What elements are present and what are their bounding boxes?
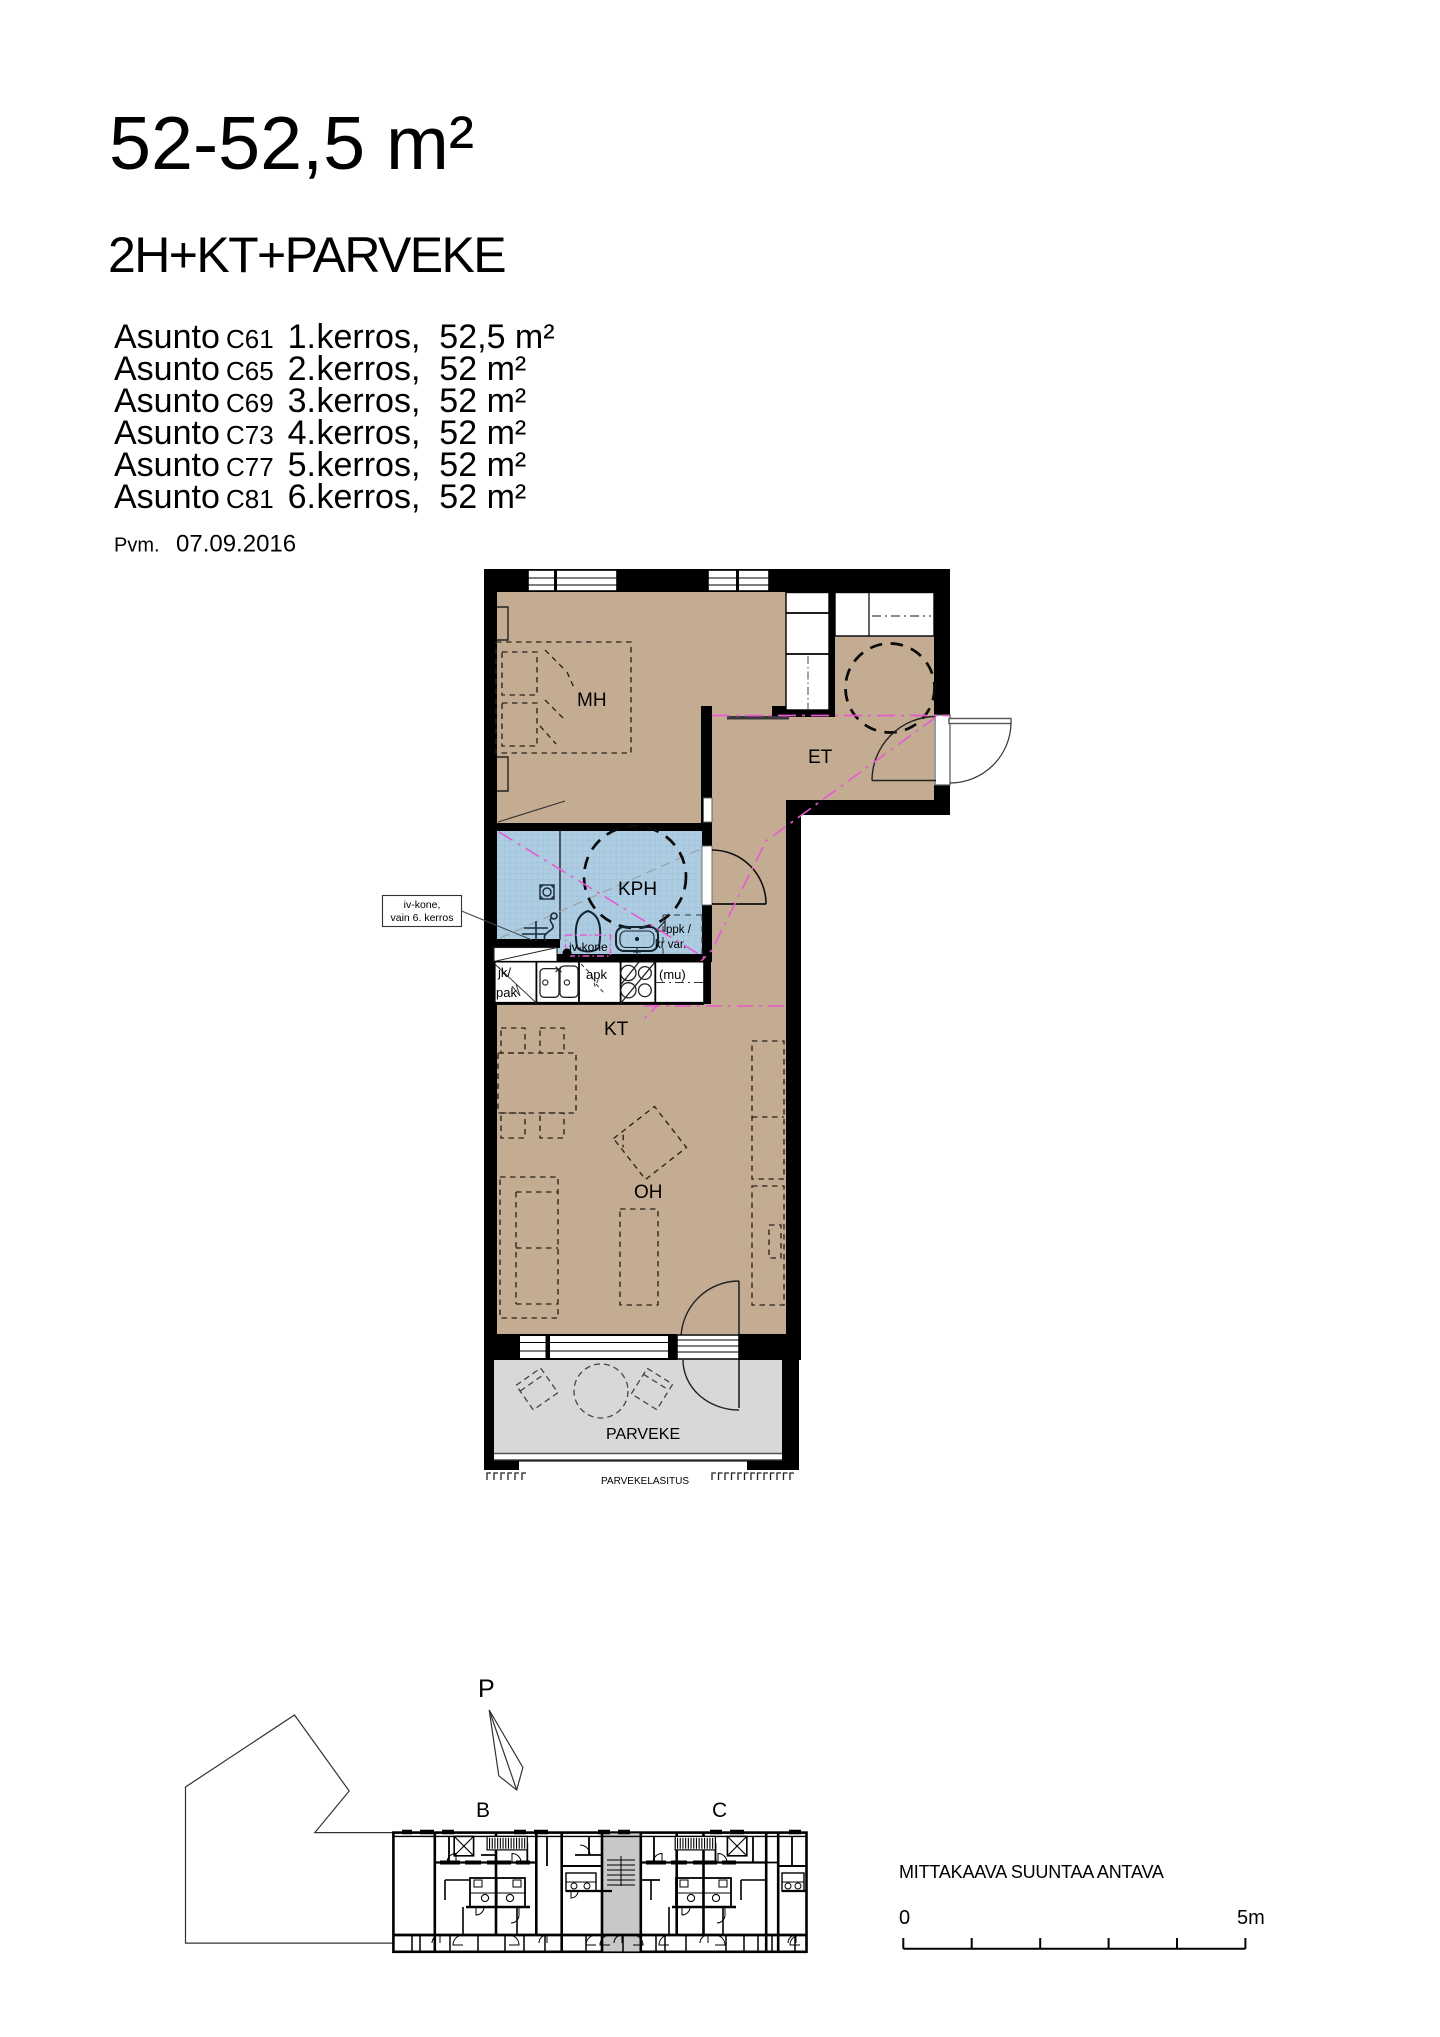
svg-text:PARVEKE: PARVEKE	[606, 1426, 680, 1443]
svg-text:07.09.2016: 07.09.2016	[176, 531, 296, 558]
svg-text:MH: MH	[577, 690, 607, 711]
svg-text:2H+KT+PARVEKE: 2H+KT+PARVEKE	[108, 227, 505, 283]
svg-text:C69: C69	[226, 388, 274, 418]
svg-text:MITTAKAAVA SUUNTAA ANTAVA: MITTAKAAVA SUUNTAA ANTAVA	[899, 1862, 1164, 1882]
svg-text:C61: C61	[226, 324, 274, 354]
svg-text:kr var.: kr var.	[655, 939, 686, 951]
svg-text:ET: ET	[808, 747, 833, 768]
svg-text:KPH: KPH	[618, 879, 657, 900]
svg-text:0: 0	[899, 1907, 910, 1929]
svg-text:C81: C81	[226, 484, 274, 514]
svg-text:(mu): (mu)	[659, 967, 686, 982]
svg-text:C65: C65	[226, 356, 274, 386]
svg-text:5m: 5m	[1237, 1907, 1265, 1929]
svg-text:jk/: jk/	[497, 965, 511, 980]
svg-text:OH: OH	[634, 1182, 663, 1203]
svg-text:iv-kone,: iv-kone,	[404, 899, 441, 911]
svg-text:B: B	[476, 1799, 490, 1822]
svg-text:pak: pak	[496, 985, 517, 1000]
svg-text:apk: apk	[586, 967, 607, 982]
svg-text:vain 6. kerros: vain 6. kerros	[390, 912, 453, 924]
svg-text:KT: KT	[604, 1019, 629, 1040]
svg-text:PARVEKELASITUS: PARVEKELASITUS	[601, 1476, 689, 1487]
svg-text:Pvm.: Pvm.	[114, 535, 160, 557]
svg-text:C: C	[712, 1799, 727, 1822]
svg-text:iv-kone: iv-kone	[569, 940, 608, 954]
svg-text:ppk /: ppk /	[666, 924, 692, 936]
svg-text:kerros, 52 m²: kerros, 52 m²	[317, 478, 527, 516]
svg-text:C73: C73	[226, 420, 274, 450]
svg-text:C77: C77	[226, 452, 274, 482]
svg-text:Asunto: Asunto	[114, 478, 220, 516]
svg-text:P: P	[478, 1675, 495, 1703]
svg-text:6.: 6.	[288, 478, 316, 516]
svg-text:52-52,5 m²: 52-52,5 m²	[109, 101, 474, 185]
